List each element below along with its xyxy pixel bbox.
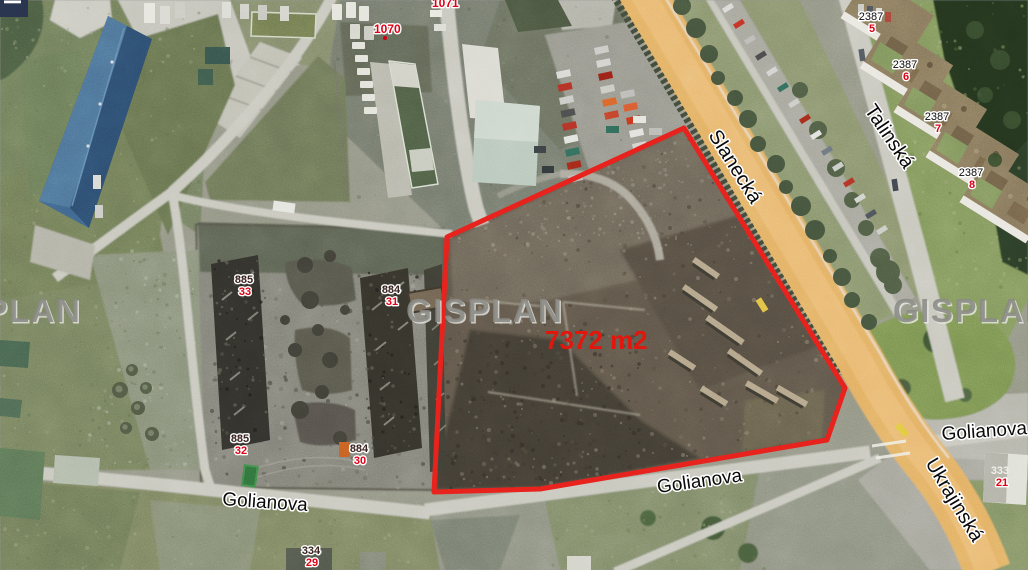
svg-text:2387: 2387 xyxy=(859,11,883,23)
svg-text:884: 884 xyxy=(350,443,369,455)
svg-text:2387: 2387 xyxy=(959,167,983,179)
svg-text:GISPLAN: GISPLAN xyxy=(893,292,1028,329)
svg-text:333: 333 xyxy=(991,465,1009,477)
svg-text:31: 31 xyxy=(386,296,398,308)
svg-text:GISPLAN: GISPLAN xyxy=(406,292,563,329)
svg-text:29: 29 xyxy=(306,557,318,569)
svg-text:21: 21 xyxy=(996,477,1008,489)
svg-text:GISPLAN: GISPLAN xyxy=(0,292,81,329)
svg-text:1070: 1070 xyxy=(374,22,401,36)
svg-text:5: 5 xyxy=(869,23,875,35)
svg-text:30: 30 xyxy=(354,455,366,467)
svg-text:7: 7 xyxy=(935,123,941,135)
svg-text:33: 33 xyxy=(239,286,251,298)
svg-text:334: 334 xyxy=(302,545,321,557)
svg-text:8: 8 xyxy=(969,179,975,191)
svg-text:884: 884 xyxy=(382,284,401,296)
svg-text:1071: 1071 xyxy=(432,0,459,10)
svg-text:885: 885 xyxy=(235,274,253,286)
svg-text:2387: 2387 xyxy=(925,111,949,123)
svg-text:32: 32 xyxy=(235,445,247,457)
svg-text:6: 6 xyxy=(903,71,909,83)
svg-text:885: 885 xyxy=(231,433,249,445)
svg-text:2387: 2387 xyxy=(893,59,917,71)
